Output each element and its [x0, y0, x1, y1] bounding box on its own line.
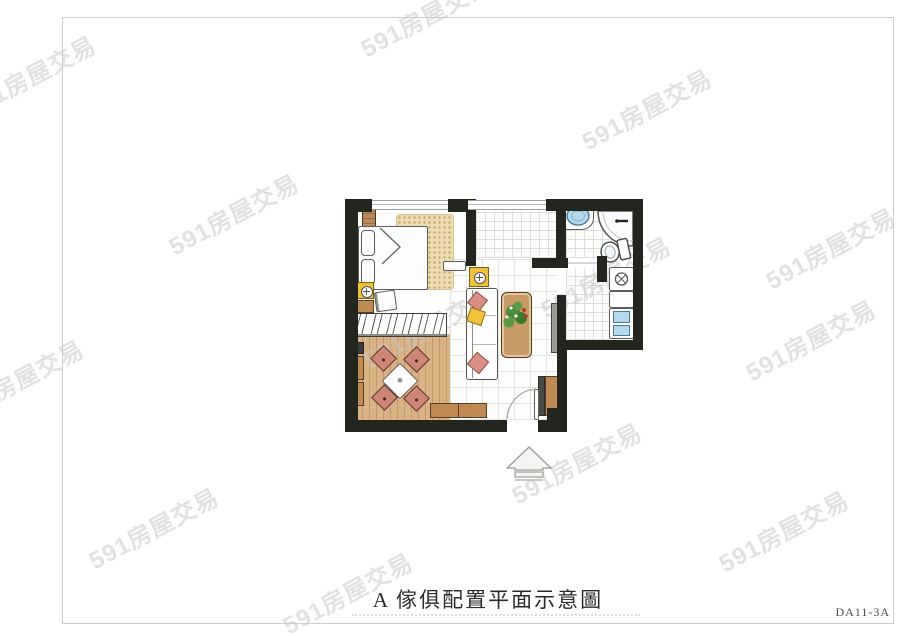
pillow-top: [361, 230, 375, 256]
wall-bathroom-corner: [597, 256, 607, 282]
wall-bathroom-bottom: [532, 258, 568, 268]
wall-kitchen-bottom: [557, 340, 643, 350]
bedroom-window: [372, 200, 448, 210]
wall-right-lower: [557, 350, 567, 432]
shoe-cabinet-side: [538, 376, 545, 416]
kitchen-stove: [609, 267, 634, 291]
wall-bottom-left: [345, 420, 507, 432]
wall-tv-partition: [557, 295, 566, 345]
wall-left: [345, 199, 358, 432]
kitchen-sink-basin-2: [613, 325, 630, 336]
lamp-icon: [474, 272, 486, 284]
hall-window: [468, 200, 546, 210]
sofa-end-table: [469, 267, 489, 287]
lamp-icon: [361, 286, 373, 298]
table-center-dot: [396, 377, 403, 384]
coffee-table: [501, 292, 532, 358]
scan-artifact-line: [352, 614, 640, 616]
sofa-cushion-line: [473, 344, 496, 345]
desk-chair: [374, 290, 398, 313]
bedroom-dresser: [357, 300, 374, 313]
wall-right-upper: [633, 199, 643, 350]
wall-top-middle: [448, 199, 468, 212]
sheet-code: DA11-3A: [835, 605, 890, 620]
sideboard: [430, 403, 487, 418]
plan-caption: A 傢俱配置平面示意圖: [76, 584, 900, 614]
kitchen-sink-basin-1: [613, 311, 630, 323]
scanned-floor-plan-page: A 傢俱配置平面示意圖 DA11-3A 591房屋交易591房屋交易591房屋交…: [0, 0, 900, 636]
entry-hall-tiles: [476, 211, 556, 258]
entry-door-leaf: [534, 389, 539, 420]
nightstand-lamp-table: [357, 282, 374, 299]
wardrobe-with-hangers: [356, 313, 447, 337]
bedroom-door-leaf: [443, 261, 466, 271]
kitchen-counter: [609, 291, 634, 308]
